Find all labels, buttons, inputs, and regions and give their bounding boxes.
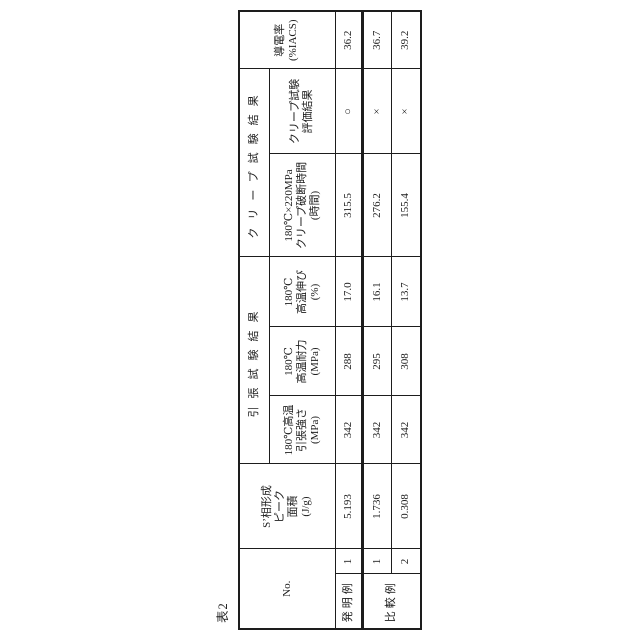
rotated-table-block: 表2 No. S’相形成 ピーク 面積 (J/g) 引張試験結果 クリープ試験結… [212, 12, 422, 630]
cell-no: 1 [362, 549, 391, 574]
header-creep-eval: クリープ試験 評価結果 [269, 69, 335, 154]
header-tensile-group: 引張試験結果 [239, 257, 269, 464]
cell-elongation: 17.0 [335, 257, 362, 327]
cell-conductivity: 39.2 [391, 11, 421, 69]
cell-proof: 308 [391, 327, 421, 396]
cell-s-phase: 1.736 [362, 464, 391, 549]
cell-conductivity: 36.2 [335, 11, 362, 69]
header-s-phase-area: S’相形成 ピーク 面積 (J/g) [239, 464, 335, 549]
header-creep-rupture-time: 180℃×220MPa クリープ破断時間 (時間) [269, 154, 335, 257]
cell-elongation: 13.7 [391, 257, 421, 327]
header-proof-stress: 180℃ 高温耐力 (MPa) [269, 327, 335, 396]
cell-eval-mark: ○ [335, 69, 362, 154]
cell-strength: 342 [335, 396, 362, 464]
cell-elongation: 16.1 [362, 257, 391, 327]
table-title: 表2 [212, 12, 238, 630]
cell-no: 2 [391, 549, 421, 574]
cell-s-phase: 5.193 [335, 464, 362, 549]
header-conductivity: 導電率 (%IACS) [239, 11, 335, 69]
row-group-label: 発明例 [335, 574, 362, 629]
header-creep-group: クリープ試験結果 [239, 69, 269, 257]
row-group-label: 比較例 [362, 574, 421, 629]
cell-no: 1 [335, 549, 362, 574]
cell-rupture-time: 276.2 [362, 154, 391, 257]
cell-proof: 288 [335, 327, 362, 396]
header-no-label: No. [281, 581, 293, 597]
table-row-comparative-2: 2 0.308 342 308 13.7 155.4 × 39.2 [391, 11, 421, 629]
cell-conductivity: 36.7 [362, 11, 391, 69]
header-elongation: 180℃ 高温伸び (%) [269, 257, 335, 327]
cell-rupture-time: 155.4 [391, 154, 421, 257]
table-row-invention-1: 発明例 1 5.193 342 288 17.0 315.5 ○ 36.2 [335, 11, 362, 629]
cell-eval-mark: × [362, 69, 391, 154]
patent-data-table: No. S’相形成 ピーク 面積 (J/g) 引張試験結果 クリープ試験結果 導… [238, 10, 422, 630]
table-row-comparative-1: 比較例 1 1.736 342 295 16.1 276.2 × 36.7 [362, 11, 391, 629]
cell-s-phase: 0.308 [391, 464, 421, 549]
cell-rupture-time: 315.5 [335, 154, 362, 257]
cell-proof: 295 [362, 327, 391, 396]
header-no: No. [239, 549, 335, 629]
cell-strength: 342 [391, 396, 421, 464]
cell-strength: 342 [362, 396, 391, 464]
cell-eval-mark: × [391, 69, 421, 154]
header-tensile-strength: 180℃高温 引張強さ (MPa) [269, 396, 335, 464]
patent-page: 表2 No. S’相形成 ピーク 面積 (J/g) 引張試験結果 クリープ試験結… [0, 0, 640, 640]
